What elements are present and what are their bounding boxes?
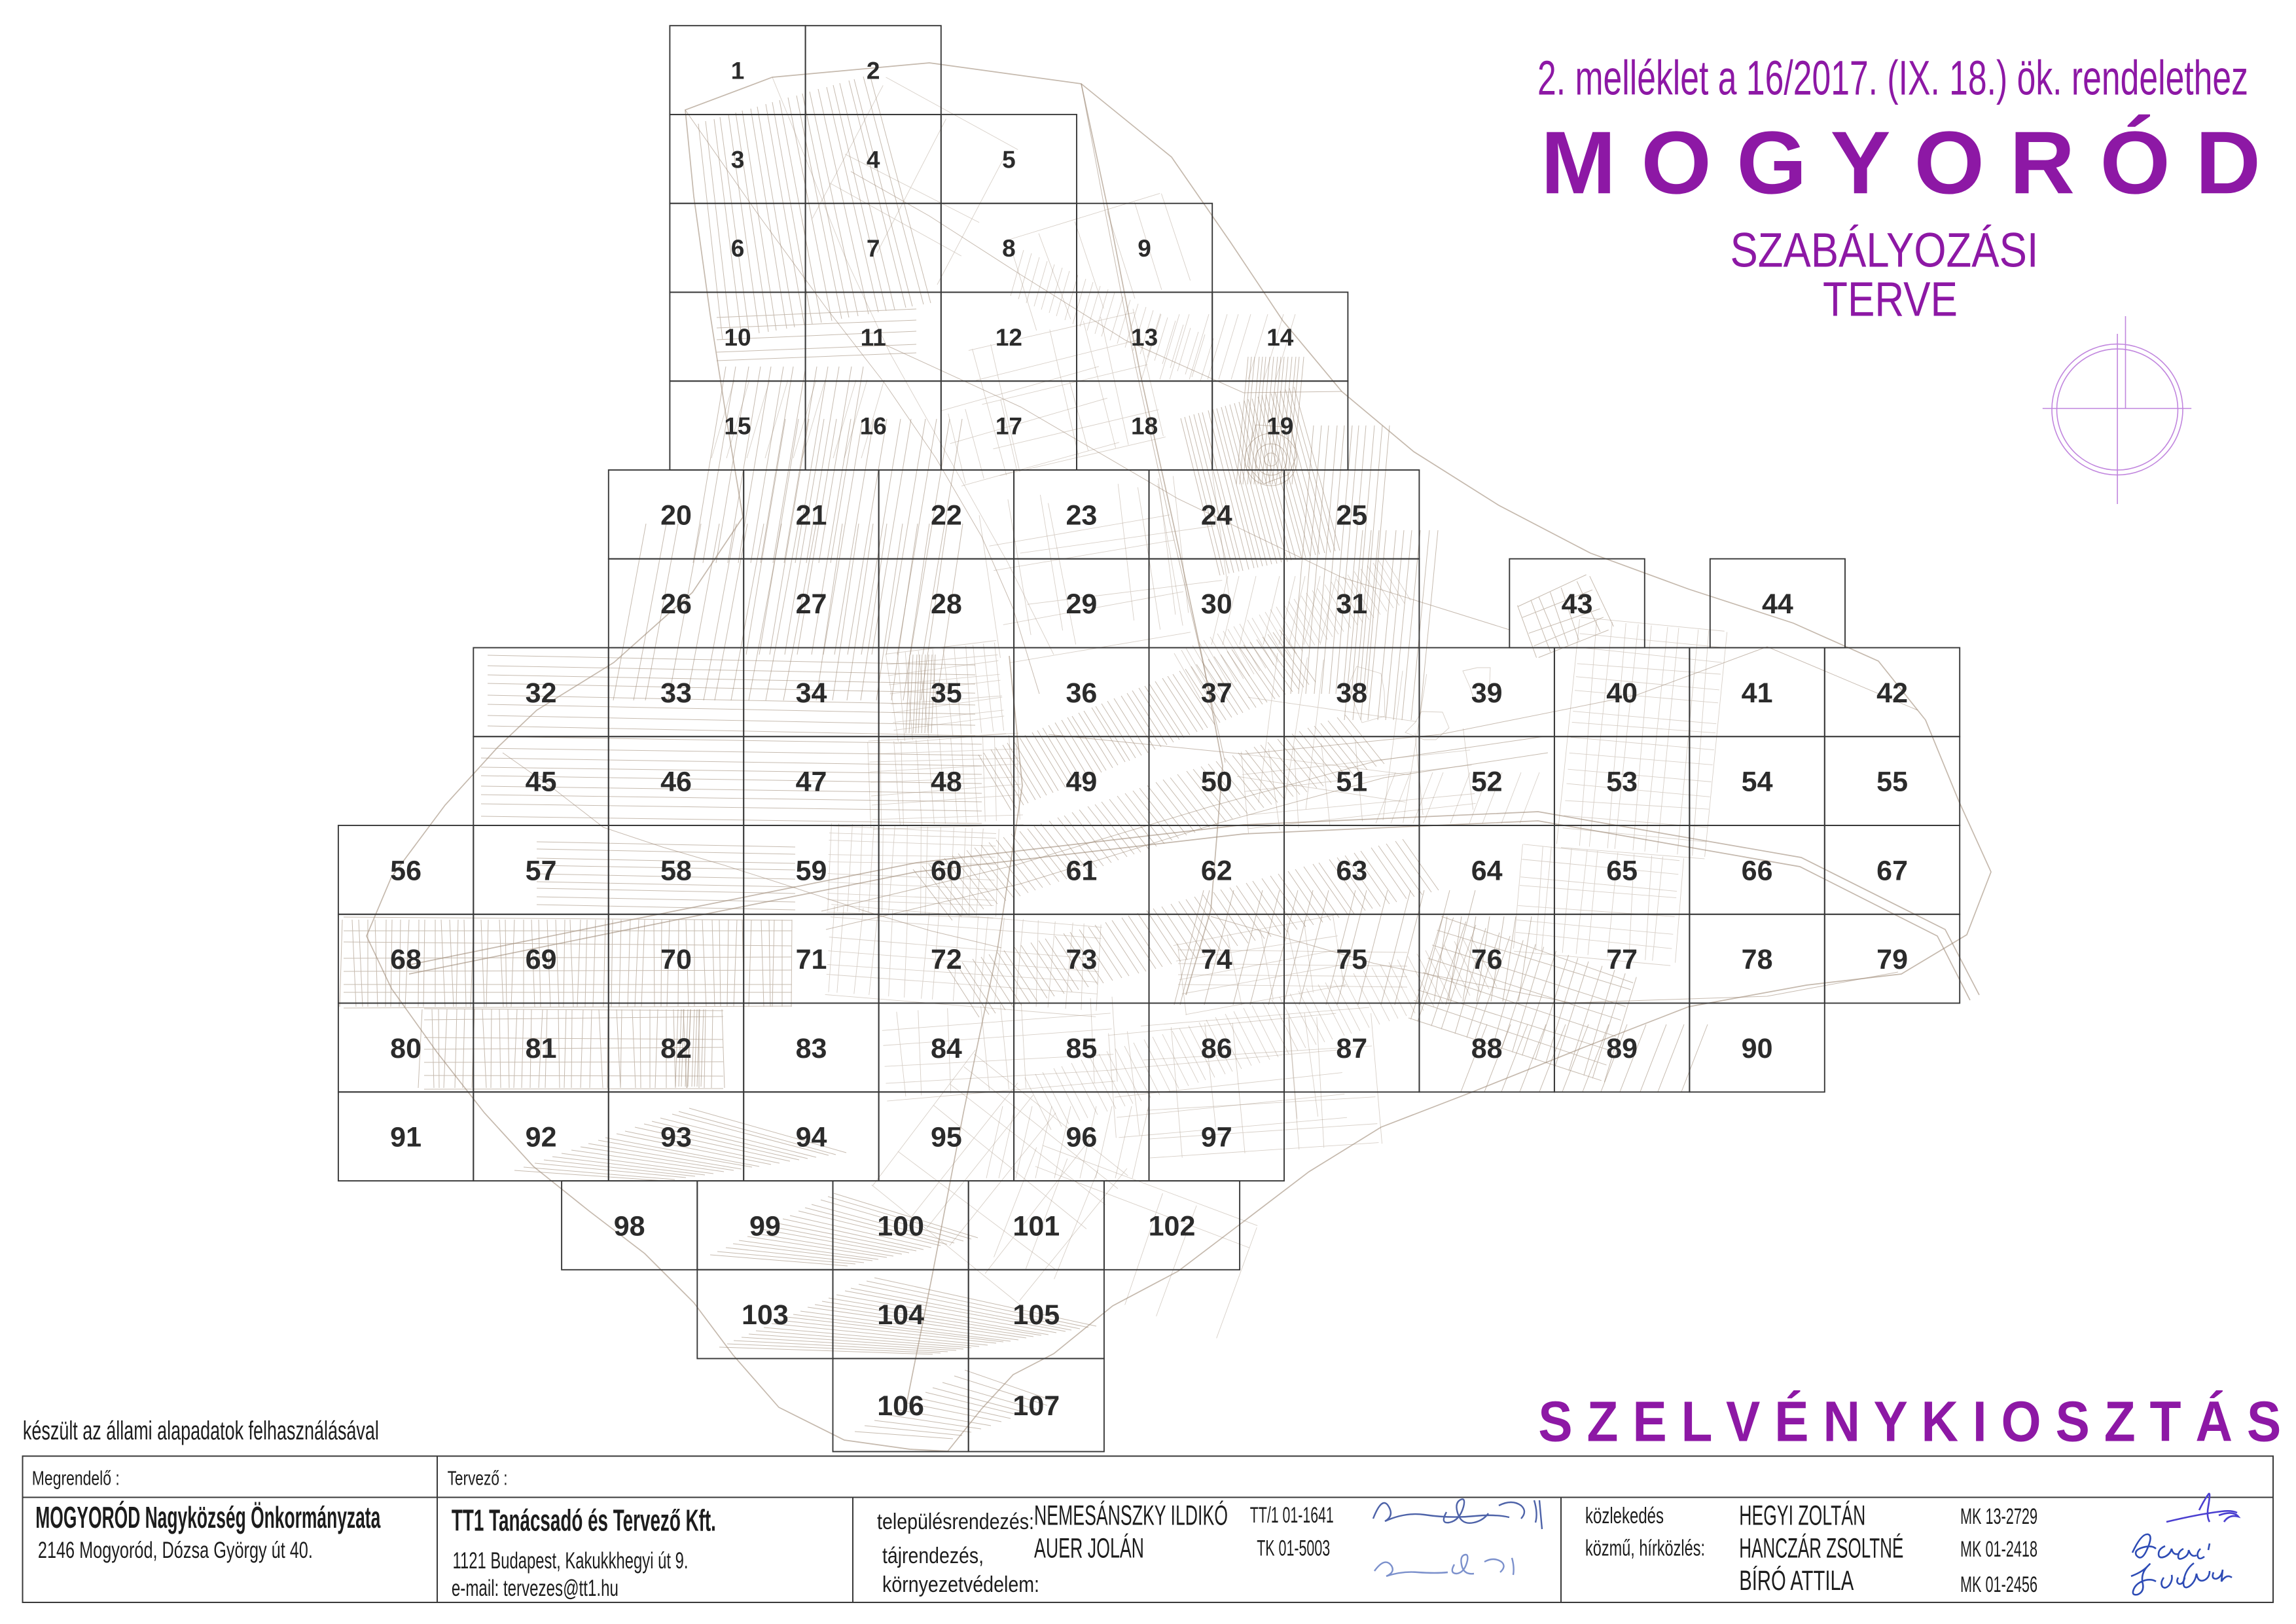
svg-text:66: 66 [1742,855,1773,886]
svg-text:55: 55 [1876,767,1908,798]
svg-text:38: 38 [1336,677,1367,709]
svg-text:9: 9 [1138,235,1151,262]
svg-text:70: 70 [660,944,692,975]
svg-text:közmű, hírközlés:: közmű, hírközlés: [1585,1536,1705,1561]
svg-text:89: 89 [1606,1033,1638,1064]
svg-text:105: 105 [1013,1299,1060,1331]
svg-text:74: 74 [1201,944,1232,975]
svg-text:26: 26 [660,588,692,620]
svg-text:12: 12 [996,324,1022,351]
svg-text:1121 Budapest, Kakukkhegyi út: 1121 Budapest, Kakukkhegyi út 9. [453,1548,689,1574]
svg-text:107: 107 [1013,1390,1060,1422]
svg-text:30: 30 [1201,588,1232,620]
svg-text:72: 72 [931,944,962,975]
svg-text:62: 62 [1201,855,1232,886]
svg-text:36: 36 [1066,677,1097,709]
svg-text:MK 01-2418: MK 01-2418 [1960,1537,2037,1562]
svg-text:73: 73 [1066,944,1097,975]
svg-text:104: 104 [877,1299,924,1331]
svg-text:TK 01-5003: TK 01-5003 [1257,1536,1330,1561]
svg-text:35: 35 [931,677,962,709]
svg-text:S Z E L V É N Y K I O S Z T Á: S Z E L V É N Y K I O S Z T Á S [1538,1390,2281,1453]
svg-text:58: 58 [660,855,692,886]
svg-text:16: 16 [860,413,887,440]
svg-text:53: 53 [1606,767,1638,798]
svg-text:33: 33 [660,677,692,709]
svg-text:27: 27 [796,588,827,620]
svg-text:MK 01-2456: MK 01-2456 [1960,1572,2037,1597]
svg-text:Tervező :: Tervező : [448,1467,508,1490]
svg-text:106: 106 [877,1390,924,1422]
svg-text:28: 28 [931,588,962,620]
svg-text:51: 51 [1336,767,1367,798]
svg-text:25: 25 [1336,499,1367,531]
svg-text:83: 83 [796,1033,827,1064]
svg-text:41: 41 [1742,677,1773,709]
svg-text:49: 49 [1066,767,1097,798]
svg-text:91: 91 [390,1122,422,1153]
svg-text:56: 56 [390,855,422,886]
svg-text:86: 86 [1201,1033,1232,1064]
svg-text:készült az állami alapadatok f: készült az állami alapadatok felhasználá… [23,1416,379,1445]
svg-text:NEMESÁNSZKY ILDIKÓ: NEMESÁNSZKY ILDIKÓ [1034,1500,1228,1532]
svg-text:43: 43 [1562,588,1593,620]
svg-text:15: 15 [724,413,751,440]
svg-text:75: 75 [1336,944,1367,975]
svg-text:TERVE: TERVE [1823,272,1958,327]
svg-text:54: 54 [1742,767,1773,798]
svg-text:81: 81 [526,1033,557,1064]
svg-text:67: 67 [1876,855,1908,886]
svg-text:településrendezés:: településrendezés: [877,1509,1034,1534]
svg-text:6: 6 [731,235,745,262]
svg-text:90: 90 [1742,1033,1773,1064]
svg-text:85: 85 [1066,1033,1097,1064]
svg-text:29: 29 [1066,588,1097,620]
svg-text:környezetvédelem:: környezetvédelem: [882,1572,1039,1597]
svg-text:2146 Mogyoród, Dózsa György út: 2146 Mogyoród, Dózsa György út 40. [38,1538,313,1563]
svg-text:76: 76 [1471,944,1503,975]
svg-text:79: 79 [1876,944,1908,975]
svg-text:4: 4 [867,146,880,173]
svg-text:14: 14 [1266,324,1294,351]
svg-text:61: 61 [1066,855,1097,886]
svg-text:10: 10 [724,324,751,351]
svg-text:11: 11 [861,324,886,351]
svg-text:68: 68 [390,944,422,975]
svg-text:65: 65 [1606,855,1638,886]
svg-text:47: 47 [796,767,827,798]
svg-text:17: 17 [996,413,1022,440]
svg-text:19: 19 [1266,413,1293,440]
svg-text:34: 34 [796,677,827,709]
svg-text:2: 2 [867,58,880,84]
svg-text:közlekedés: közlekedés [1585,1504,1664,1528]
svg-text:87: 87 [1336,1033,1367,1064]
svg-text:TT/1 01-1641: TT/1 01-1641 [1250,1503,1334,1528]
svg-text:MOGYORÓD Nagyközség Önkormányz: MOGYORÓD Nagyközség Önkormányzata [35,1500,380,1534]
svg-text:96: 96 [1066,1122,1097,1153]
svg-text:1: 1 [731,58,745,84]
svg-text:32: 32 [526,677,557,709]
svg-text:99: 99 [749,1210,781,1242]
svg-text:97: 97 [1201,1122,1232,1153]
svg-text:92: 92 [526,1122,557,1153]
svg-text:2. melléklet a 16/2017. (IX. 1: 2. melléklet a 16/2017. (IX. 18.) ök. re… [1537,51,2248,105]
svg-text:21: 21 [796,499,827,531]
svg-text:13: 13 [1131,324,1158,351]
svg-text:100: 100 [877,1210,924,1242]
svg-text:AUER JOLÁN: AUER JOLÁN [1034,1532,1144,1564]
svg-text:64: 64 [1471,855,1503,886]
svg-text:84: 84 [931,1033,962,1064]
svg-text:88: 88 [1471,1033,1503,1064]
svg-text:48: 48 [931,767,962,798]
svg-text:46: 46 [660,767,692,798]
svg-text:94: 94 [796,1122,827,1153]
svg-text:95: 95 [931,1122,962,1153]
svg-text:45: 45 [526,767,557,798]
svg-text:69: 69 [526,944,557,975]
svg-text:102: 102 [1149,1210,1196,1242]
svg-text:93: 93 [660,1122,692,1153]
svg-text:71: 71 [796,944,827,975]
svg-text:98: 98 [614,1210,645,1242]
svg-text:80: 80 [390,1033,422,1064]
svg-text:57: 57 [526,855,557,886]
svg-text:5: 5 [1002,146,1016,173]
svg-text:HANCZÁR ZSOLTNÉ: HANCZÁR ZSOLTNÉ [1739,1532,1903,1564]
svg-text:22: 22 [931,499,962,531]
svg-text:TT1 Tanácsadó és Tervező Kft.: TT1 Tanácsadó és Tervező Kft. [452,1504,716,1538]
svg-text:HEGYI ZOLTÁN: HEGYI ZOLTÁN [1739,1500,1865,1532]
svg-text:7: 7 [867,235,880,262]
svg-text:101: 101 [1013,1210,1060,1242]
svg-text:50: 50 [1201,767,1232,798]
svg-text:M O G Y O R Ó D: M O G Y O R Ó D [1541,113,2261,212]
svg-text:40: 40 [1606,677,1638,709]
svg-text:20: 20 [660,499,692,531]
svg-text:82: 82 [660,1033,692,1064]
svg-text:e-mail: tervezes@tt1.hu: e-mail: tervezes@tt1.hu [452,1576,619,1601]
svg-text:37: 37 [1201,677,1232,709]
svg-text:BÍRÓ ATTILA: BÍRÓ ATTILA [1739,1565,1854,1597]
svg-text:60: 60 [931,855,962,886]
svg-text:MK 13-2729: MK 13-2729 [1960,1504,2037,1529]
svg-text:8: 8 [1002,235,1016,262]
svg-text:18: 18 [1131,413,1158,440]
svg-text:52: 52 [1471,767,1503,798]
svg-text:59: 59 [796,855,827,886]
svg-text:SZABÁLYOZÁSI: SZABÁLYOZÁSI [1731,223,2039,278]
svg-text:tájrendezés,: tájrendezés, [882,1543,984,1568]
svg-text:103: 103 [742,1299,789,1331]
svg-text:39: 39 [1471,677,1503,709]
svg-text:42: 42 [1876,677,1908,709]
svg-text:3: 3 [731,146,745,173]
svg-text:78: 78 [1742,944,1773,975]
svg-text:44: 44 [1762,588,1793,620]
svg-text:23: 23 [1066,499,1097,531]
svg-text:Megrendelő :: Megrendelő : [32,1467,120,1490]
svg-text:24: 24 [1201,499,1232,531]
svg-text:77: 77 [1606,944,1638,975]
svg-text:63: 63 [1336,855,1367,886]
svg-text:31: 31 [1336,588,1367,620]
